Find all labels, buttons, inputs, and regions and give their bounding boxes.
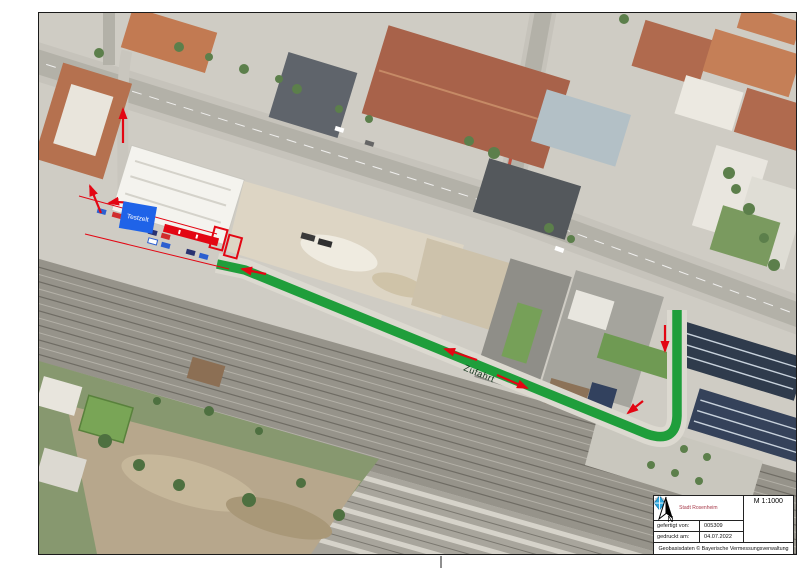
scale-label: M 1:1000 xyxy=(754,498,783,505)
attribution: Geobasisdaten © Bayerische Vermessungsve… xyxy=(654,542,793,554)
legend-box: Stadt Rosenheim gefertigt von: 005309 ge… xyxy=(653,495,794,555)
fold-mark xyxy=(440,556,442,568)
legend-row: gedruckt am: 04.07.2022 xyxy=(654,531,743,542)
plan-sheet: Zufahrt xyxy=(0,0,810,573)
north-label: N xyxy=(668,515,674,523)
legend-row-value: 04.07.2022 xyxy=(699,532,743,542)
legend-row-value: 005309 xyxy=(699,521,743,531)
legend-row-label: gedruckt am: xyxy=(654,534,699,540)
north-arrow-icon: N xyxy=(654,496,680,523)
org-name: Stadt Rosenheim xyxy=(679,505,717,511)
legend-row-label: gefertigt von: xyxy=(654,523,699,529)
aerial-photo: Zufahrt xyxy=(39,13,796,554)
aerial-map: Zufahrt xyxy=(38,12,797,555)
